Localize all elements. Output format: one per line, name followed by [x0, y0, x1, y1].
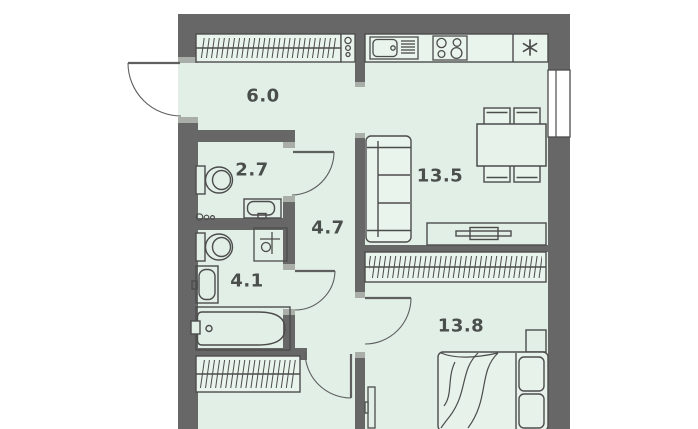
wall-tv-icon: [365, 387, 375, 428]
sofa-icon: [366, 136, 411, 242]
nightstand: [526, 330, 546, 352]
bedroom-door: [365, 298, 411, 344]
hall-door: [305, 352, 351, 398]
dining-table: [477, 124, 546, 166]
entry-wardrobe: [196, 34, 341, 62]
room-label-bathroom-small: 2.7: [235, 160, 268, 181]
window: [548, 70, 570, 137]
room-label-hallway: 6.0: [246, 86, 279, 107]
toilet-icon: [196, 233, 233, 261]
toilet-icon: [196, 166, 233, 194]
room-label-kitchen-living: 13.5: [417, 166, 463, 187]
plan-drawing: [0, 0, 698, 429]
linen-wardrobe: [196, 356, 300, 392]
bathroom-small-door: [292, 152, 334, 195]
tv-stand-icon: [427, 223, 546, 245]
room-label-corridor: 4.7: [311, 218, 344, 239]
bedroom-wardrobe: [365, 252, 546, 282]
bathroom-door: [295, 271, 335, 310]
towel-hooks-icon: [196, 214, 214, 220]
room-label-bathroom: 4.1: [230, 271, 263, 292]
entrance-door: [128, 63, 181, 116]
washbasin-icon: [192, 266, 218, 303]
washbasin-icon: [244, 199, 281, 219]
floor-plan: 6.0 2.7 4.7 4.1 13.5 13.8: [0, 0, 698, 429]
washing-machine-spot-icon: [254, 228, 287, 261]
coat-hooks-icon: [341, 34, 355, 62]
room-label-bedroom: 13.8: [438, 316, 484, 337]
bathtub-icon: [191, 307, 290, 350]
